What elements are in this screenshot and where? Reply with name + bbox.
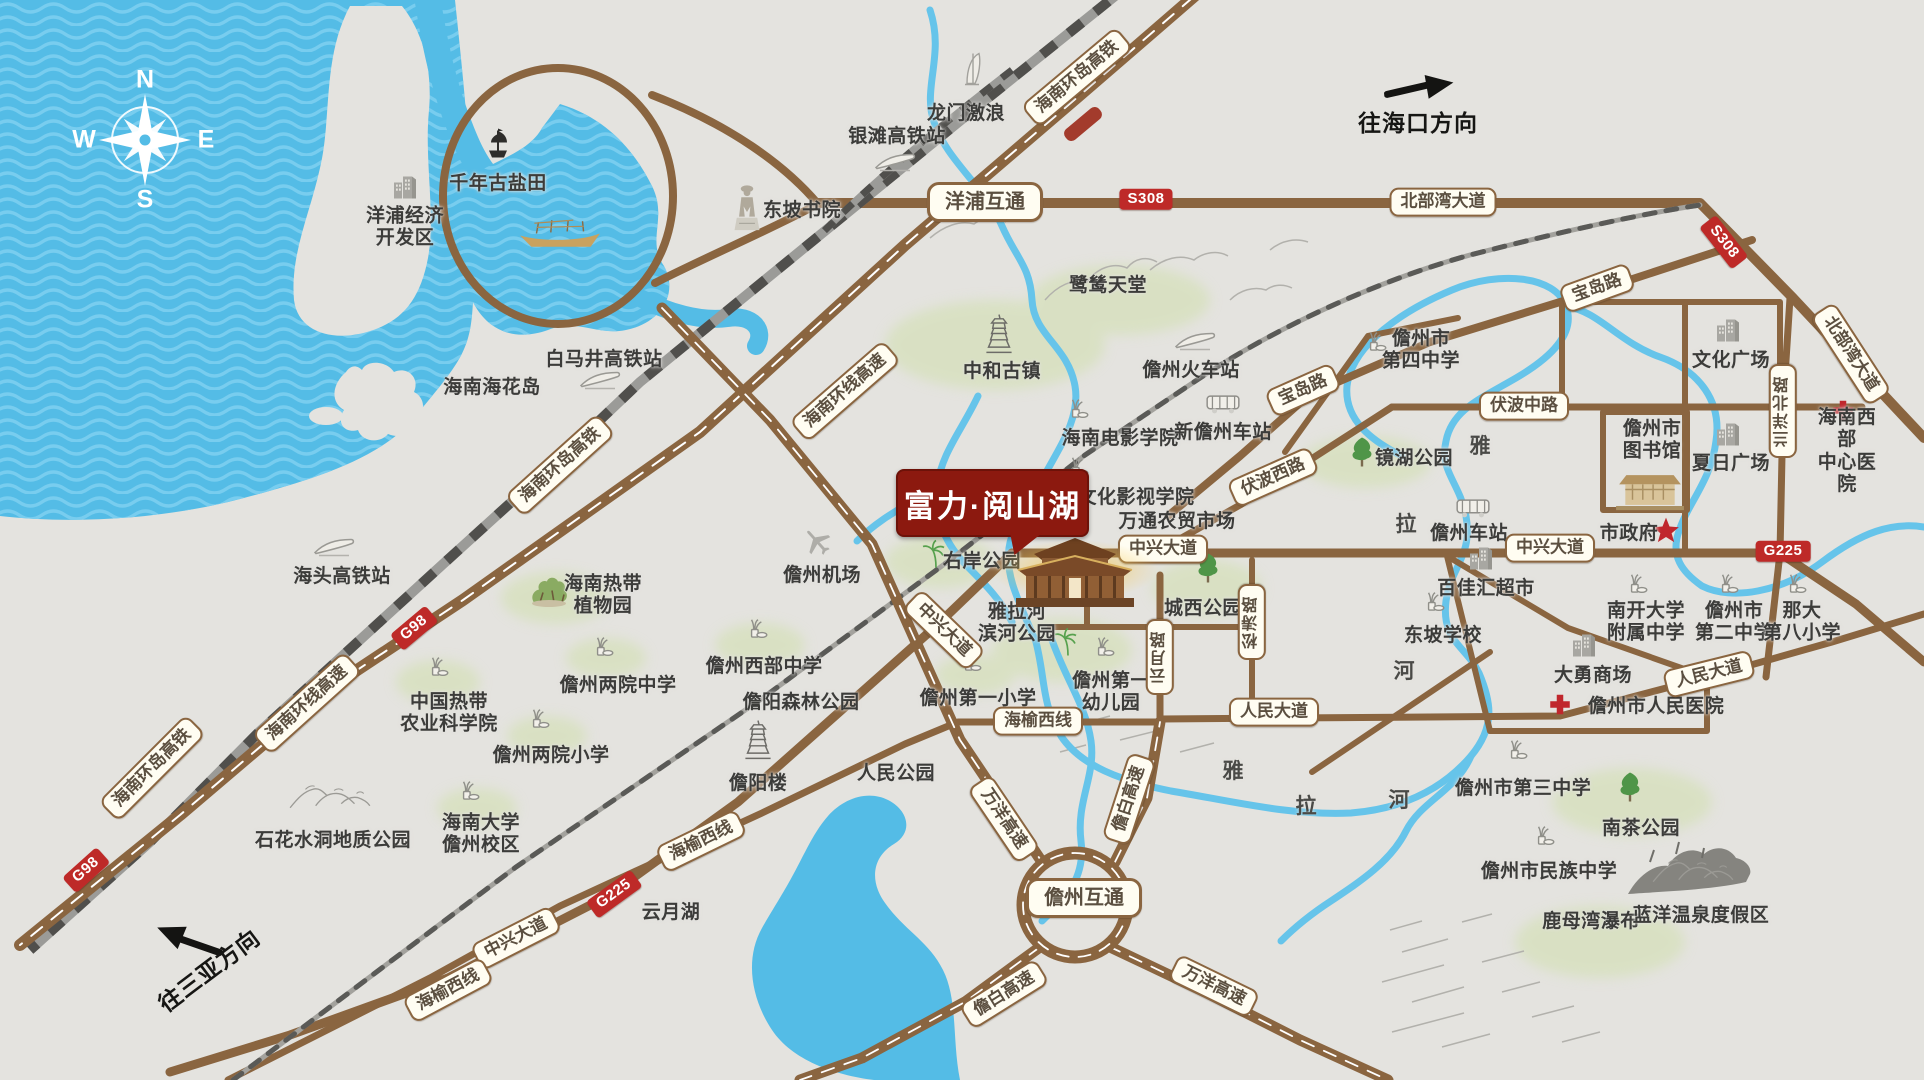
project-name: 富力·阅山湖 <box>904 481 1081 526</box>
ship-icon <box>483 126 513 167</box>
place-label: 城西公园 <box>1164 598 1242 620</box>
place-label: 龙门激浪 <box>927 103 1005 125</box>
compass-e: E <box>198 126 215 155</box>
road-label: 北部湾大道 <box>1810 301 1892 406</box>
road-label: 洋浦互通 <box>927 182 1043 222</box>
road-label: 北部湾大道 <box>1390 188 1497 217</box>
road-label: 万洋高速 <box>1167 953 1260 1018</box>
train-icon <box>312 536 356 565</box>
place-label: 儋州市 第二中学 <box>1695 601 1773 646</box>
place-label: 那大 第八小学 <box>1763 601 1841 646</box>
road-label: 海南环岛高铁 <box>98 714 206 822</box>
compass-w: W <box>72 126 96 155</box>
plant-icon <box>744 617 770 648</box>
tree-icon <box>1615 770 1645 811</box>
windsurf-icon <box>959 49 985 96</box>
plant-icon <box>1504 738 1530 769</box>
road-label: 海南环线高速 <box>789 339 901 442</box>
compass-n: N <box>136 66 154 95</box>
road-label: 儋州互通 <box>1026 878 1142 918</box>
road-label: 宝岛路 <box>1264 362 1342 418</box>
route-badge: G98 <box>62 847 110 893</box>
place-label: 南开大学 附属中学 <box>1607 601 1685 646</box>
road-label: 伏波西路 <box>1226 446 1320 509</box>
place-label: 儋州第一 幼儿园 <box>1072 671 1150 716</box>
place-label: 鹿母湾瀑布 <box>1542 911 1640 933</box>
building-icon <box>1569 629 1599 664</box>
library-illustration <box>1614 466 1686 519</box>
river-label: 河 <box>1389 784 1410 814</box>
road-label: 海榆西线 <box>402 956 495 1024</box>
place-label: 海南电影学院 <box>1061 428 1178 450</box>
place-label: 洋浦经济 开发区 <box>366 206 444 251</box>
place-label: 海南大学 儋州校区 <box>442 813 520 858</box>
place-label: 大勇商场 <box>1554 665 1632 687</box>
project-callout: 富力·阅山湖 <box>896 469 1089 537</box>
place-label: 海南热带 植物园 <box>564 574 642 619</box>
road-label: 万洋高速 <box>967 774 1041 865</box>
plant-icon <box>526 707 552 738</box>
road-label: 云月路 <box>1146 619 1174 695</box>
place-label: 海南西部 中心医院 <box>1809 407 1886 497</box>
place-label: 市政府 <box>1600 523 1659 545</box>
road-label: 兰洋北路 <box>1769 364 1797 458</box>
train-icon <box>873 151 917 180</box>
place-label: 人民公园 <box>857 763 935 785</box>
road-label: 中兴大道 <box>902 588 987 671</box>
palm-icon <box>1053 628 1083 663</box>
place-label: 白马井高铁站 <box>545 349 662 371</box>
boat-illustration <box>516 217 604 258</box>
place-label: 儋州市第三中学 <box>1455 778 1592 800</box>
road-label: 海榆西线 <box>654 808 747 873</box>
route-badge: G225 <box>586 870 642 919</box>
place-label: 百佳汇超市 <box>1437 578 1535 600</box>
pagoda-icon <box>742 719 774 766</box>
direction-label: 往海口方向 <box>1358 104 1478 138</box>
place-label: 儋州市人民医院 <box>1588 696 1725 718</box>
place-label: 千年古盐田 <box>449 173 547 195</box>
river-label: 拉 <box>1396 508 1417 538</box>
bus-icon <box>1454 496 1492 525</box>
place-label: 儋州西部中学 <box>705 656 822 678</box>
place-label: 东坡学校 <box>1404 625 1482 647</box>
road-label: 儋白高速 <box>958 958 1050 1030</box>
road-label: 宝岛路 <box>1558 262 1636 314</box>
place-label: 中国热带 农业科学院 <box>400 692 498 737</box>
place-label: 海头高铁站 <box>293 566 391 588</box>
route-badge: S308 <box>1700 215 1749 269</box>
place-label: 儋州机场 <box>783 565 861 587</box>
place-label: 儋州两院中学 <box>559 675 676 697</box>
place-label: 银滩高铁站 <box>848 126 946 148</box>
plane-icon <box>800 525 834 564</box>
plant-icon <box>1783 572 1809 603</box>
plant-icon <box>590 635 616 666</box>
place-label: 中和古镇 <box>963 361 1041 383</box>
plant-icon <box>1715 572 1741 603</box>
plant-icon <box>1065 397 1091 428</box>
road-label: 海榆西线 <box>993 707 1083 736</box>
place-label: 云月湖 <box>642 902 701 924</box>
plant-icon <box>1531 824 1557 855</box>
road-label: 中兴大道 <box>1505 534 1595 563</box>
pagoda-icon <box>983 313 1015 360</box>
place-label: 新儋州车站 <box>1174 422 1272 444</box>
road-label: 海南环岛高铁 <box>504 413 615 517</box>
road-label: 海南环线高速 <box>251 651 362 755</box>
plant-icon <box>1624 572 1650 603</box>
mountain-icon <box>1648 849 1740 896</box>
statue-icon <box>730 179 764 242</box>
plant-icon <box>1091 635 1117 666</box>
route-badge: G98 <box>390 605 438 650</box>
place-label: 儋州车站 <box>1430 523 1508 545</box>
place-label: 儋州火车站 <box>1142 360 1240 382</box>
place-label: 东坡书院 <box>763 200 841 222</box>
place-label: 儋州市 图书馆 <box>1623 419 1682 464</box>
place-label: 文化广场 <box>1692 350 1770 372</box>
route-badge: S308 <box>1119 189 1172 210</box>
place-label: 儋阳楼 <box>729 773 788 795</box>
place-label: 鹭鸶天堂 <box>1069 275 1147 297</box>
river-label: 河 <box>1394 655 1415 685</box>
road-label: 儋白高速 <box>1101 752 1156 846</box>
place-label: 石花水洞地质公园 <box>255 830 411 852</box>
tree-icon <box>1347 435 1377 476</box>
bus-icon <box>1204 392 1242 421</box>
river-label: 雅 <box>1223 755 1244 785</box>
building-icon <box>1713 314 1743 349</box>
place-label: 文化影视学院 <box>1077 487 1194 509</box>
train-icon <box>578 369 622 398</box>
road-label: 海南环岛高铁 <box>1020 26 1133 128</box>
river-label: 拉 <box>1296 790 1317 820</box>
road-label: 人民大道 <box>1662 649 1756 699</box>
road-label: 人民大道 <box>1229 698 1319 727</box>
place-label: 儋州两院小学 <box>492 745 609 767</box>
place-label: 蓝洋温泉度假区 <box>1633 905 1770 927</box>
mountain-icon <box>285 775 377 822</box>
place-label: 夏日广场 <box>1692 453 1770 475</box>
building-icon <box>1466 542 1496 577</box>
place-label: 儋阳森林公园 <box>742 692 859 714</box>
river-label: 雅 <box>1470 430 1491 460</box>
route-badge: G225 <box>1756 541 1811 562</box>
building-icon <box>390 171 420 206</box>
train-icon <box>1173 330 1217 359</box>
place-label: 海南海花岛 <box>443 377 541 399</box>
place-label: 儋州市民族中学 <box>1481 861 1618 883</box>
building-icon <box>1713 418 1743 453</box>
place-label: 镜湖公园 <box>1375 448 1453 470</box>
place-label: 儋州市 第四中学 <box>1382 329 1460 374</box>
road-label: 伏波中路 <box>1479 392 1569 421</box>
road-label: 松涛路 <box>1238 584 1266 660</box>
compass-s: S <box>137 186 154 215</box>
plant-icon <box>425 655 451 686</box>
plant-icon <box>456 779 482 810</box>
location-map: 洋浦经济 开发区千年古盐田东坡书院龙门激浪银滩高铁站白马井高铁站海南海花岛海头高… <box>0 0 1924 1080</box>
place-label: 南茶公园 <box>1602 818 1680 840</box>
hospital-cross-icon <box>1547 692 1573 723</box>
